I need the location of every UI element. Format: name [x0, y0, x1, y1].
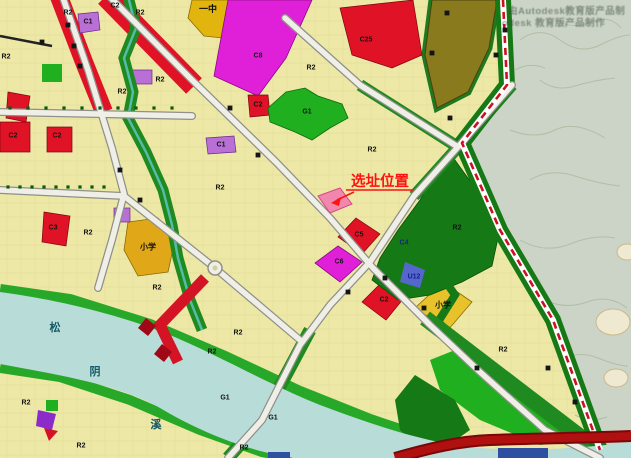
- road-name-glyph: [256, 153, 261, 158]
- zone-label: C6: [335, 259, 344, 266]
- place-label: 松: [50, 320, 61, 334]
- tree-icon: [116, 106, 119, 109]
- zone-label: R2: [118, 89, 127, 96]
- place-label: 小学: [434, 300, 451, 310]
- zone-label: C3: [49, 225, 58, 232]
- zone-label: C2: [9, 133, 18, 140]
- zone-label: R2: [307, 65, 316, 72]
- tree-icon: [8, 106, 11, 109]
- zone-label: C2: [380, 297, 389, 304]
- site-callout-text: 选址位置: [351, 172, 409, 190]
- place-label: 阴: [90, 364, 101, 378]
- tree-icon: [42, 185, 45, 188]
- road-name-glyph: [422, 306, 427, 311]
- place-label: 小学: [139, 242, 156, 252]
- zone-label: C2: [53, 133, 62, 140]
- tree-icon: [90, 185, 93, 188]
- tree-icon: [102, 185, 105, 188]
- tree-icon: [30, 185, 33, 188]
- place-label: 溪: [151, 417, 163, 431]
- tree-icon: [54, 185, 57, 188]
- zone-label: C8: [254, 53, 263, 60]
- tree-icon: [6, 185, 9, 188]
- zone-label: U12: [408, 274, 421, 281]
- tree-icon: [62, 106, 65, 109]
- tree-icon: [170, 106, 173, 109]
- zone-label: R2: [22, 400, 31, 407]
- tree-icon: [66, 185, 69, 188]
- planning-map-screenshot[interactable]: 选址位置 R2R2R2R2R2R2R2R2R2R2R2R2R2R2R2R2R2C…: [0, 0, 631, 458]
- road-name-glyph: [40, 40, 45, 45]
- zone-label: R2: [77, 443, 86, 450]
- water-blue-patch: [498, 448, 548, 458]
- tree-icon: [18, 185, 21, 188]
- zone-label: R2: [499, 347, 508, 354]
- road-name-glyph: [494, 53, 499, 58]
- road-name-glyph: [448, 116, 453, 121]
- zone-label: R2: [156, 77, 165, 84]
- tree-icon: [80, 106, 83, 109]
- water-blue-patch: [268, 452, 290, 458]
- zone-label: R2: [240, 445, 249, 452]
- zone-label: R2: [453, 225, 462, 232]
- zone-label: G1: [220, 395, 229, 402]
- zone-label: R2: [136, 10, 145, 17]
- zone-label: C4: [400, 240, 409, 247]
- planning-map-svg: 选址位置 R2R2R2R2R2R2R2R2R2R2R2R2R2R2R2R2R2C…: [0, 0, 631, 458]
- tree-icon: [98, 106, 101, 109]
- zone-label: R2: [64, 10, 73, 17]
- road-name-glyph: [118, 168, 123, 173]
- tree-icon: [78, 185, 81, 188]
- zone-label: C2: [254, 102, 263, 109]
- tree-icon: [44, 106, 47, 109]
- zone-label: C2: [111, 3, 120, 10]
- tree-icon: [152, 106, 155, 109]
- road-name-glyph: [430, 51, 435, 56]
- road-name-glyph: [546, 366, 551, 371]
- zone-label: R2: [2, 54, 11, 61]
- zone-label: G1: [268, 415, 277, 422]
- road-name-glyph: [66, 23, 71, 28]
- watermark-line-2: odesk 教育版产品制作: [502, 17, 605, 29]
- zone-label: R2: [153, 285, 162, 292]
- zone-label: R2: [234, 330, 243, 337]
- road-name-glyph: [228, 106, 233, 111]
- zone-label: R2: [216, 185, 225, 192]
- tree-icon: [26, 106, 29, 109]
- zone-label: R2: [208, 349, 217, 356]
- zone-label: C25: [360, 37, 373, 44]
- zone-label: C1: [217, 142, 226, 149]
- road-name-glyph: [346, 290, 351, 295]
- zone-label: R2: [368, 147, 377, 154]
- road-name-glyph: [445, 11, 450, 16]
- zone-label: G1: [302, 109, 311, 116]
- road-name-glyph: [383, 276, 388, 281]
- zone-label: R2: [84, 230, 93, 237]
- road-name-glyph: [78, 64, 83, 69]
- place-label: 一中: [199, 3, 217, 14]
- road-name-glyph: [72, 44, 77, 49]
- zone-label: C1: [84, 19, 93, 26]
- tree-icon: [134, 106, 137, 109]
- road-name-glyph: [475, 366, 480, 371]
- road-name-glyph: [573, 400, 578, 405]
- zone-label: C5: [355, 232, 364, 239]
- road-name-glyph: [138, 198, 143, 203]
- watermark-line-1: 由Autodesk教育版产品制: [508, 5, 625, 17]
